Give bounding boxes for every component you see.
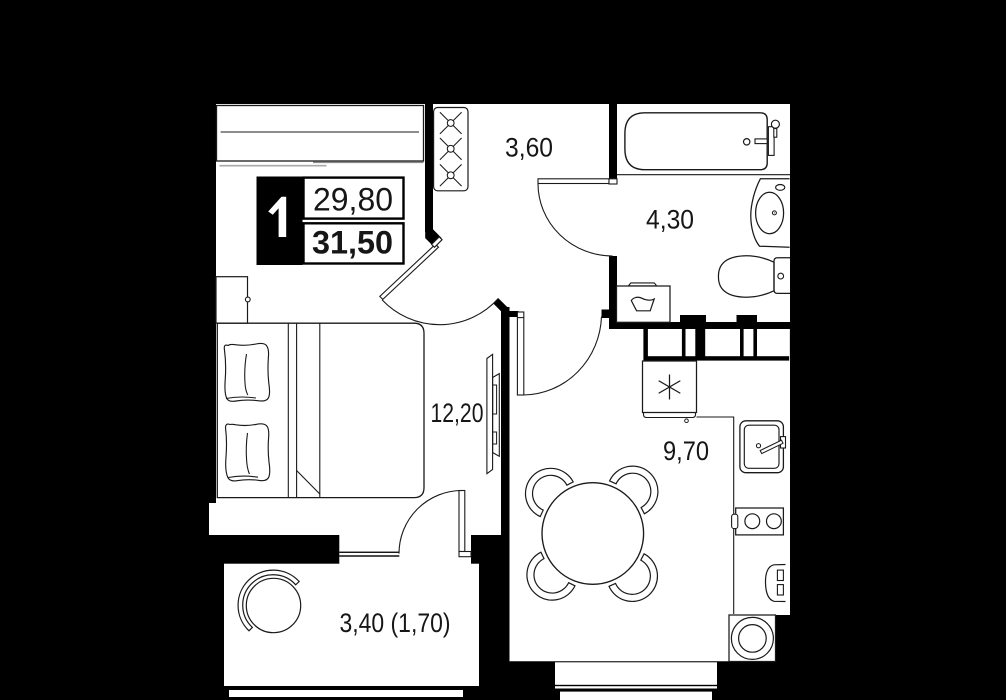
svg-text:12,20: 12,20 <box>431 398 484 428</box>
svg-text:4,30: 4,30 <box>646 205 694 235</box>
svg-text:29,80: 29,80 <box>313 182 393 218</box>
svg-text:31,50: 31,50 <box>312 225 393 261</box>
svg-text:3,40 (1,70): 3,40 (1,70) <box>340 608 451 638</box>
svg-text:9,70: 9,70 <box>663 436 709 466</box>
svg-text:3,60: 3,60 <box>505 133 553 163</box>
